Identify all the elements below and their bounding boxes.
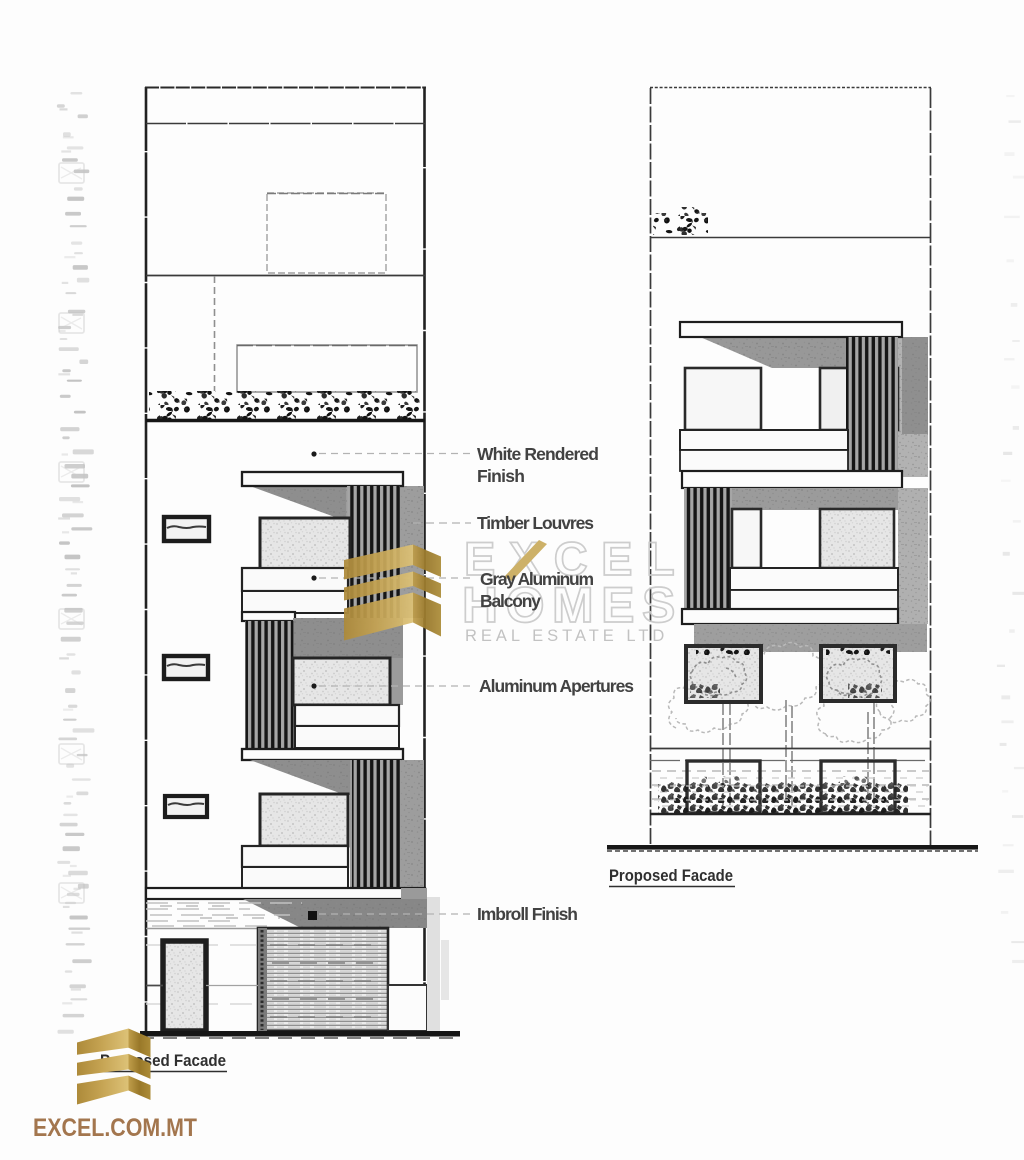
svg-text:Finish: Finish <box>477 466 525 486</box>
svg-text:Timber Louvres: Timber Louvres <box>477 513 594 533</box>
svg-text:EXCEL.COM.MT: EXCEL.COM.MT <box>33 1114 197 1142</box>
svg-text:White Rendered: White Rendered <box>477 444 599 464</box>
svg-text:Aluminum Apertures: Aluminum Apertures <box>479 676 634 696</box>
svg-text:Proposed Facade: Proposed Facade <box>609 867 733 885</box>
svg-text:Balcony: Balcony <box>480 591 541 611</box>
svg-text:REAL ESTATE LTD: REAL ESTATE LTD <box>465 627 668 645</box>
svg-text:Gray Aluminum: Gray Aluminum <box>480 569 594 589</box>
svg-text:Imbroll Finish: Imbroll Finish <box>477 904 578 924</box>
